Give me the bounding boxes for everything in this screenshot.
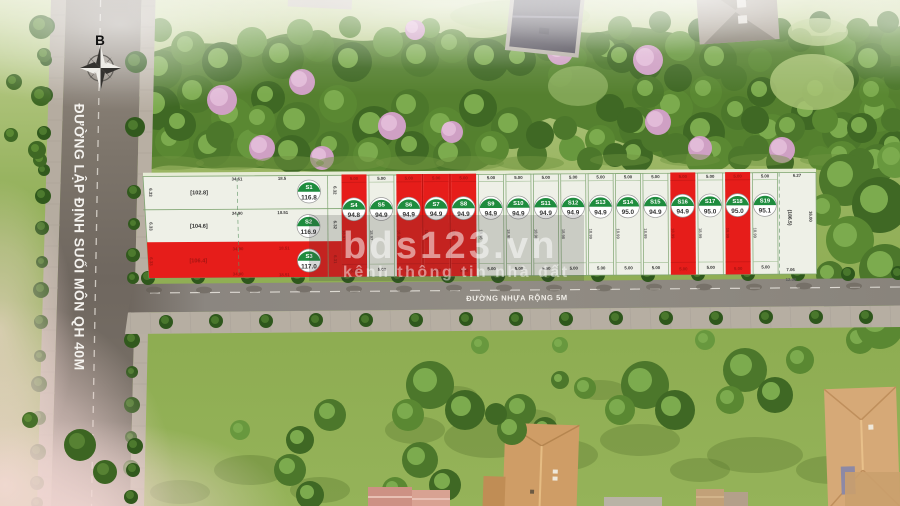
svg-text:S14: S14: [623, 200, 634, 206]
svg-text:95.1: 95.1: [759, 208, 772, 215]
svg-text:B: B: [95, 33, 105, 48]
svg-text:bds123.vn: bds123.vn: [343, 225, 558, 267]
svg-text:95.0: 95.0: [704, 208, 717, 215]
svg-text:5.00: 5.00: [679, 266, 688, 271]
svg-text:18.51: 18.51: [277, 210, 288, 215]
svg-text:5.00: 5.00: [761, 264, 770, 269]
svg-text:5.00: 5.00: [761, 173, 770, 178]
svg-text:5.00: 5.00: [377, 176, 386, 181]
svg-text:S5: S5: [378, 203, 386, 209]
svg-text:ĐƯỜNG LẬP ĐỊNH SUỐI MÔN QH 40M: ĐƯỜNG LẬP ĐỊNH SUỐI MÔN QH 40M: [72, 103, 89, 370]
svg-text:5.00: 5.00: [597, 265, 606, 270]
svg-text:[106.4]: [106.4]: [189, 258, 207, 264]
svg-text:7.06: 7.06: [786, 267, 795, 272]
svg-text:6.33: 6.33: [148, 222, 153, 231]
svg-text:95.0: 95.0: [622, 209, 635, 216]
svg-text:18.99: 18.99: [588, 229, 593, 240]
svg-text:S11: S11: [541, 201, 552, 207]
svg-text:S13: S13: [595, 200, 606, 206]
svg-text:34,90: 34,90: [232, 211, 243, 216]
svg-text:5.00: 5.00: [405, 176, 414, 181]
svg-text:5.00: 5.00: [569, 175, 578, 180]
svg-text:18.99: 18.99: [670, 228, 675, 239]
svg-text:95.0: 95.0: [731, 208, 744, 215]
svg-text:18.99: 18.99: [725, 228, 730, 239]
svg-text:5.00: 5.00: [542, 175, 551, 180]
svg-text:5.00: 5.00: [459, 175, 468, 180]
svg-text:18.99: 18.99: [753, 228, 758, 239]
svg-text:5.00: 5.00: [514, 175, 523, 180]
svg-text:kênh thông tin nhà đất: kênh thông tin nhà đất: [343, 264, 570, 281]
svg-text:116.8: 116.8: [301, 194, 317, 201]
svg-text:5.00: 5.00: [679, 174, 688, 179]
svg-text:5.00: 5.00: [734, 266, 743, 271]
svg-text:S16: S16: [678, 199, 689, 205]
svg-text:S1: S1: [305, 185, 313, 191]
svg-text:[104.6]: [104.6]: [190, 224, 208, 230]
svg-text:34,61: 34,61: [232, 176, 243, 181]
svg-text:S9: S9: [487, 201, 495, 207]
svg-text:18.99: 18.99: [643, 228, 648, 239]
svg-text:S8: S8: [460, 202, 468, 208]
svg-text:6.33: 6.33: [148, 188, 153, 197]
svg-text:6.27: 6.27: [793, 173, 802, 178]
svg-text:5.00: 5.00: [706, 174, 715, 179]
svg-text:18.51: 18.51: [279, 246, 290, 251]
svg-text:5.00: 5.00: [624, 174, 633, 179]
svg-text:5.00: 5.00: [596, 174, 605, 179]
svg-text:5.00: 5.00: [651, 174, 660, 179]
svg-text:S19: S19: [760, 198, 771, 204]
svg-text:6.32: 6.32: [332, 186, 337, 195]
svg-text:(186.5): (186.5): [786, 210, 792, 226]
svg-text:S10: S10: [513, 201, 523, 207]
svg-text:S17: S17: [705, 199, 715, 205]
svg-text:5.00: 5.00: [487, 175, 496, 180]
svg-text:S6: S6: [405, 202, 413, 208]
svg-text:94.9: 94.9: [594, 209, 607, 216]
svg-text:5.00: 5.00: [624, 265, 633, 270]
svg-text:18.99: 18.99: [698, 228, 703, 239]
svg-text:S15: S15: [650, 200, 661, 206]
svg-text:ĐƯỜNG NHỰA RỘNG 5M: ĐƯỜNG NHỰA RỘNG 5M: [466, 293, 568, 303]
svg-text:34,90: 34,90: [233, 271, 244, 276]
svg-text:18.5: 18.5: [278, 176, 287, 181]
svg-text:6.33: 6.33: [149, 257, 154, 266]
svg-text:18.51: 18.51: [279, 272, 290, 277]
svg-text:5.00: 5.00: [432, 175, 441, 180]
svg-text:94.9: 94.9: [649, 209, 662, 216]
svg-text:S7: S7: [433, 202, 440, 208]
svg-text:5.00: 5.00: [652, 265, 661, 270]
svg-text:5.00: 5.00: [707, 265, 716, 270]
svg-text:S18: S18: [732, 199, 743, 205]
svg-text:94.9: 94.9: [676, 209, 689, 216]
svg-text:34,90: 34,90: [233, 246, 244, 251]
svg-text:12.06: 12.06: [786, 277, 797, 282]
svg-text:[102.8]: [102.8]: [190, 190, 208, 196]
svg-text:16.00: 16.00: [808, 211, 813, 222]
svg-text:5.00: 5.00: [350, 176, 359, 181]
svg-text:5.00: 5.00: [733, 174, 742, 179]
svg-text:S4: S4: [350, 203, 358, 209]
svg-text:S12: S12: [568, 201, 578, 207]
svg-text:18.99: 18.99: [616, 228, 621, 239]
